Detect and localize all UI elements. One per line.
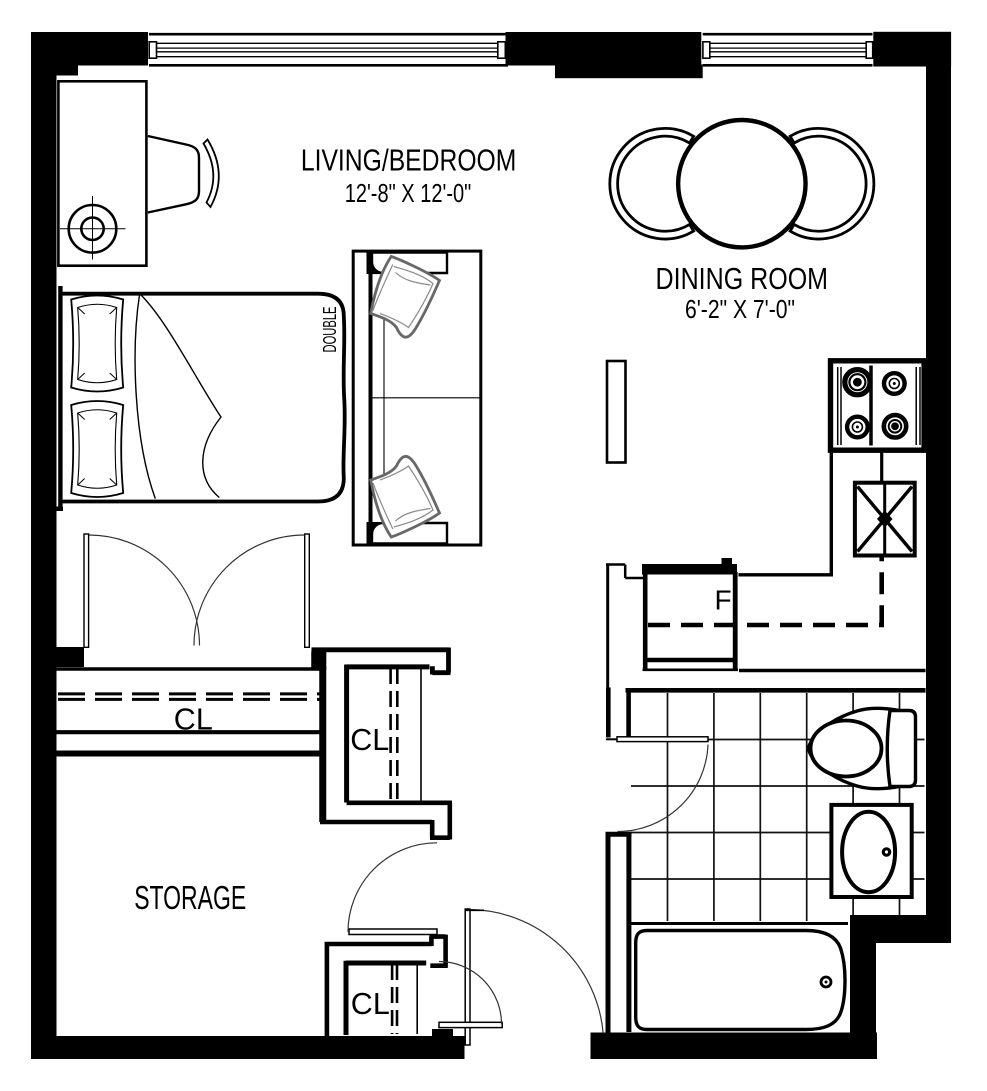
svg-text:DOUBLE: DOUBLE xyxy=(319,307,340,353)
svg-text:6'-2" X 7'-0": 6'-2" X 7'-0" xyxy=(685,294,795,324)
svg-text:12'-8" X 12'-0": 12'-8" X 12'-0" xyxy=(345,178,472,208)
svg-text:DINING ROOM: DINING ROOM xyxy=(656,262,829,296)
svg-text:F: F xyxy=(715,585,732,616)
svg-text:CL: CL xyxy=(350,722,389,757)
svg-text:CL: CL xyxy=(174,701,213,736)
svg-text:LIVING/BEDROOM: LIVING/BEDROOM xyxy=(301,143,517,177)
svg-text:CL: CL xyxy=(351,986,390,1021)
svg-text:STORAGE: STORAGE xyxy=(134,879,246,916)
